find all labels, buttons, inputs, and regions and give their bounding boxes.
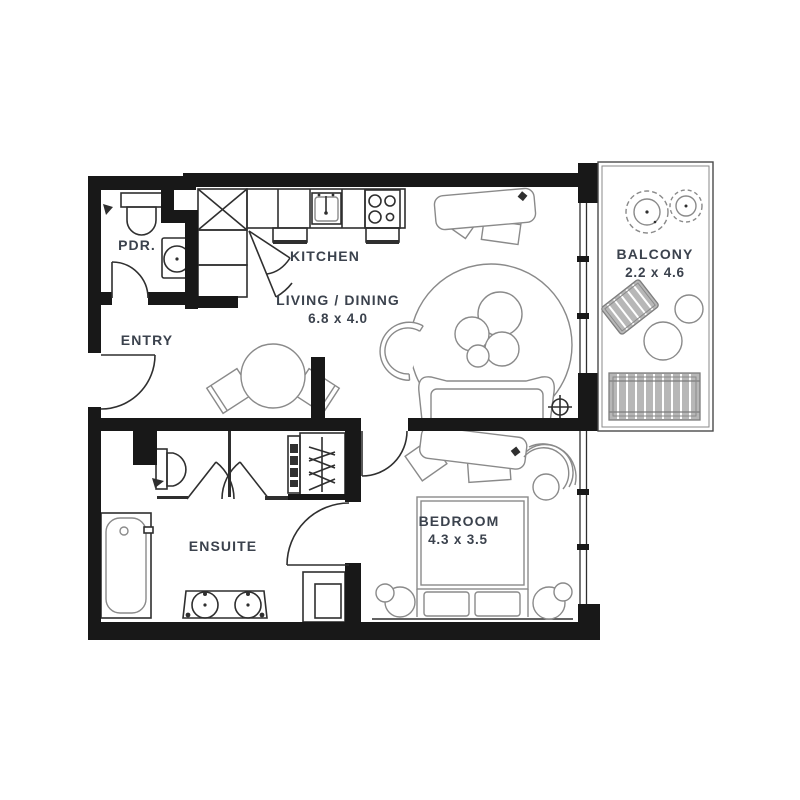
bedroom-dims: 4.3 x 3.5 <box>428 532 488 547</box>
kitchen-label: KITCHEN <box>290 248 360 264</box>
wall-segment <box>578 163 598 203</box>
wall-segment <box>183 173 598 187</box>
balcony-plant-small <box>670 190 702 222</box>
pillow <box>424 592 469 616</box>
living-desk <box>434 188 537 245</box>
floor-plan-svg: PDR. ENTRY KITCHEN LIVING / DINING 6.8 x… <box>0 0 800 800</box>
pdr-hook-icon <box>103 204 113 215</box>
cooktop <box>365 190 400 228</box>
living-dining-label: LIVING / DINING <box>276 292 400 308</box>
pdr-door <box>112 262 148 298</box>
wall-segment <box>408 418 598 431</box>
wall-segment <box>101 418 360 431</box>
wall-segment <box>133 431 157 465</box>
ensuite-door <box>287 503 349 565</box>
pillow <box>475 592 520 616</box>
bedroom-label: BEDROOM <box>419 513 500 529</box>
wall-segment <box>88 176 101 353</box>
pdr-label: PDR. <box>118 237 156 253</box>
wall-segment <box>198 296 238 308</box>
bedroom-desk <box>405 425 528 482</box>
balcony-label: BALCONY <box>617 246 694 262</box>
pdr-toilet <box>121 193 162 235</box>
wall-segment <box>88 622 600 640</box>
ensuite-toilet <box>152 449 186 489</box>
ensuite-cabinet <box>303 572 345 622</box>
wall-segment <box>88 176 196 190</box>
wardrobe <box>300 433 345 495</box>
balcony-plant-large <box>626 191 668 233</box>
wall-segment <box>311 357 325 419</box>
ensuite-label: ENSUITE <box>189 538 257 554</box>
linen-shelves <box>288 436 300 493</box>
living-dining-dims: 6.8 x 4.0 <box>308 311 368 326</box>
balcony-side-table-small <box>675 295 703 323</box>
armchair <box>374 316 423 381</box>
kitchen-sink <box>312 193 341 224</box>
balcony-dims: 2.2 x 4.6 <box>625 265 685 280</box>
wall-segment <box>578 604 600 626</box>
entry-label: ENTRY <box>121 332 173 348</box>
bedroom-window <box>577 431 589 604</box>
living-window <box>577 203 589 373</box>
wall-segment <box>578 373 598 431</box>
labels: PDR. ENTRY KITCHEN LIVING / DINING 6.8 x… <box>118 237 693 554</box>
bedroom-door <box>362 431 407 476</box>
wall-segment <box>101 292 112 305</box>
curved-chair <box>524 444 576 500</box>
wall-segment <box>345 563 361 622</box>
entry-door <box>101 355 155 409</box>
balcony-side-table-large <box>644 322 682 360</box>
balcony-bench <box>609 373 700 420</box>
wall-segment <box>345 418 361 502</box>
bathtub <box>101 513 153 618</box>
kitchen-cabinets <box>198 189 405 297</box>
wall-segment <box>148 292 198 305</box>
wall-segment <box>88 407 101 640</box>
floor-plan: PDR. ENTRY KITCHEN LIVING / DINING 6.8 x… <box>0 0 800 800</box>
coffee-tables <box>455 292 522 367</box>
double-vanity <box>183 591 267 618</box>
